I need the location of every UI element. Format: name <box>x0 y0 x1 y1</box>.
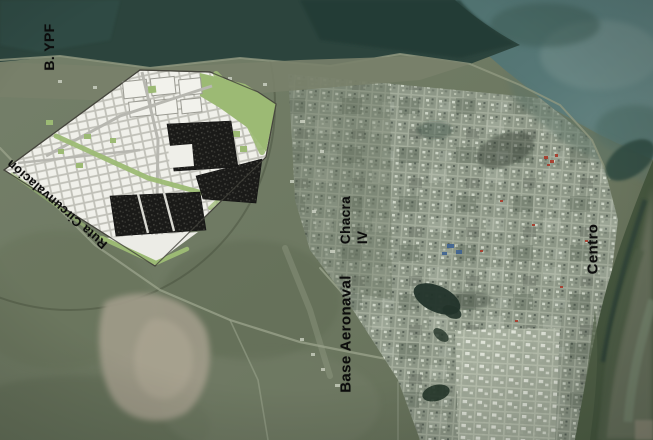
label-chacra-iv: Chacra IV <box>337 196 371 244</box>
label-b-ypf: B. YPF <box>41 23 57 70</box>
label-centro: Centro <box>584 224 601 275</box>
label-base-aeronaval: Base Aeronaval <box>337 275 354 393</box>
vignette <box>0 0 653 440</box>
label-chacra-iv-line1: Chacra <box>337 196 354 244</box>
map-artwork <box>0 0 653 440</box>
label-chacra-iv-line2: IV <box>354 196 371 244</box>
satellite-map: B. YPF Ruta Circunvalación Chacra IV Bas… <box>0 0 653 440</box>
